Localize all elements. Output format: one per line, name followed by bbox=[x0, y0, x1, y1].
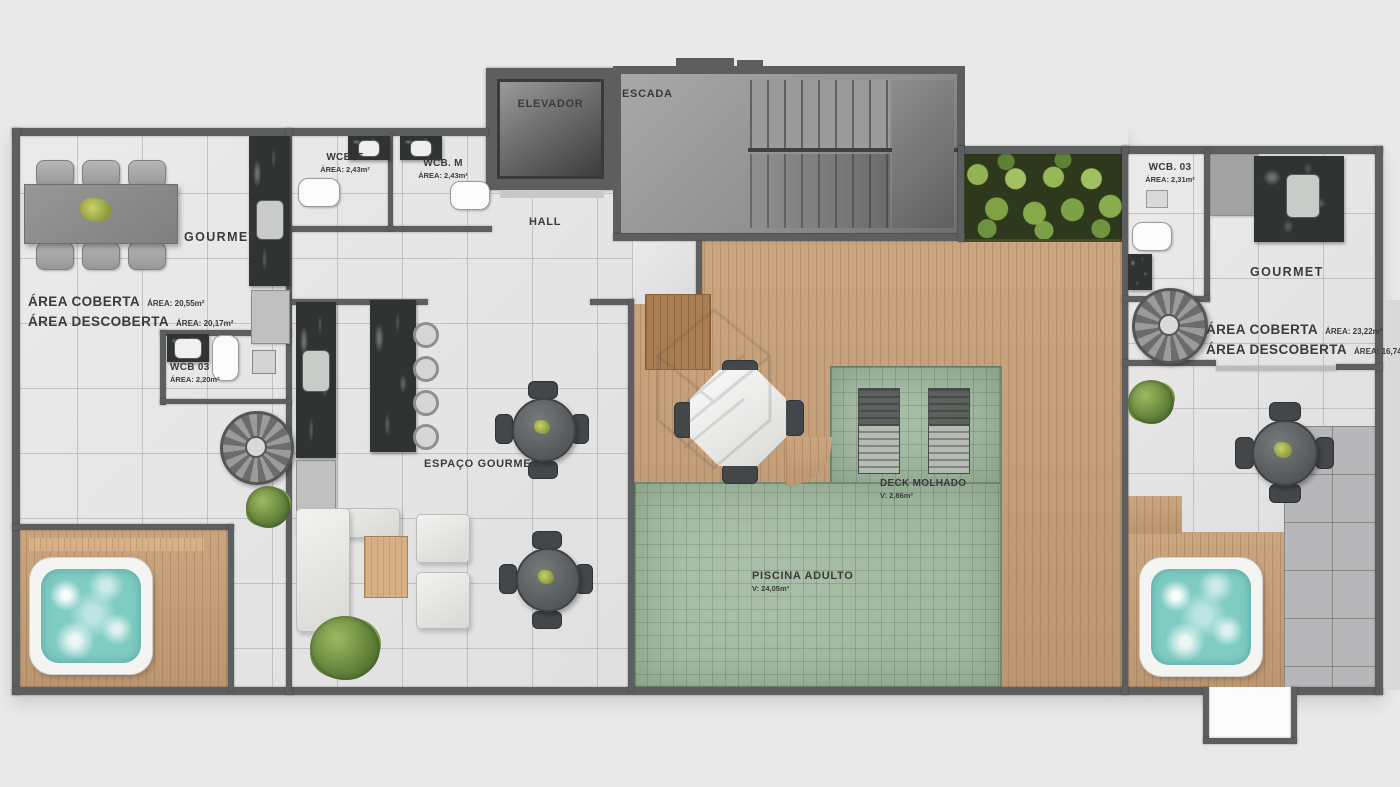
wall bbox=[160, 330, 166, 405]
wall bbox=[1291, 687, 1297, 743]
stair-flight-lower bbox=[750, 154, 890, 228]
wall bbox=[12, 128, 20, 695]
area-coberta-right: ÁREA COBERTA ÁREA: 23,22m² bbox=[1206, 322, 1382, 339]
room-area-wcb03-right-text: ÁREA: 2,31m² bbox=[1132, 175, 1208, 184]
room-label-hall-text: HALL bbox=[529, 216, 561, 230]
room-label-espaco-gourmet-text: ESPAÇO GOURMET bbox=[424, 458, 539, 472]
sink bbox=[1286, 174, 1320, 218]
area-coberta-left: ÁREA COBERTA ÁREA: 20,55m² bbox=[28, 294, 204, 311]
wall bbox=[1336, 364, 1383, 370]
bar-stool bbox=[413, 424, 439, 450]
room-area-wcb-f-text: ÁREA: 2,43m² bbox=[302, 165, 388, 174]
toilet bbox=[1132, 222, 1172, 251]
pool-lounger bbox=[858, 388, 900, 474]
room-area-wcb03-left-text: ÁREA: 2,20m² bbox=[170, 375, 220, 384]
wall bbox=[1291, 687, 1383, 695]
jacuzzi-left-water bbox=[41, 569, 141, 663]
wall bbox=[228, 524, 234, 691]
shower-fixture bbox=[252, 350, 276, 374]
armchair bbox=[416, 514, 470, 563]
wall bbox=[12, 687, 1209, 695]
sofa bbox=[296, 508, 350, 632]
room-label-piscina-adulto: PISCINA ADULTO V: 24,05m³ bbox=[752, 570, 853, 593]
chair bbox=[528, 381, 558, 399]
armchair bbox=[416, 572, 470, 629]
room-label-elevador-text: ELEVADOR bbox=[497, 98, 604, 112]
wall bbox=[1122, 146, 1383, 154]
wall bbox=[958, 146, 1130, 154]
coffee-table bbox=[364, 536, 408, 598]
room-label-deck-molhado-text: DECK MOLHADO bbox=[880, 478, 966, 491]
room-label-gourmet-left-text: GOURMET bbox=[184, 230, 258, 246]
room-label-piscina-adulto-text: PISCINA ADULTO bbox=[752, 570, 853, 584]
room-label-elevador: ELEVADOR bbox=[497, 98, 604, 112]
spiral-staircase-hub bbox=[245, 436, 267, 458]
wall bbox=[1375, 146, 1383, 695]
roof-cap bbox=[737, 60, 763, 69]
bar-stool bbox=[413, 356, 439, 382]
dining-chair bbox=[128, 242, 166, 270]
stair-landing bbox=[892, 80, 954, 228]
plant-centerpiece bbox=[1274, 442, 1292, 458]
potted-plant bbox=[310, 616, 380, 680]
pool-lounger bbox=[928, 388, 970, 474]
dining-chair bbox=[82, 242, 120, 270]
wall bbox=[1203, 738, 1297, 744]
area-descoberta-left-value: ÁREA: 20,17m² bbox=[176, 319, 233, 329]
room-label-escada-text: ESCADA bbox=[622, 88, 673, 102]
area-coberta-right-value: ÁREA: 23,22m² bbox=[1325, 327, 1382, 337]
wet-deck-area bbox=[830, 366, 1002, 484]
plant-centerpiece bbox=[538, 570, 554, 584]
bar-stool bbox=[413, 390, 439, 416]
wall bbox=[613, 234, 965, 241]
jacuzzi-right-water bbox=[1151, 569, 1251, 665]
chair bbox=[532, 611, 562, 629]
chair bbox=[495, 414, 513, 444]
cabinet bbox=[1210, 154, 1258, 216]
stair-flight-upper bbox=[750, 80, 890, 148]
room-label-escada: ESCADA bbox=[622, 88, 673, 102]
vanity bbox=[1128, 254, 1152, 290]
wall bbox=[12, 524, 234, 530]
room-label-gourmet-right-text: GOURMET bbox=[1250, 265, 1324, 281]
toilet bbox=[450, 181, 490, 210]
wall bbox=[1122, 146, 1128, 695]
sink bbox=[410, 140, 432, 157]
sink bbox=[256, 200, 284, 240]
room-volume-piscina-adulto-text: V: 24,05m³ bbox=[752, 584, 853, 593]
sink bbox=[302, 350, 330, 392]
potted-plant bbox=[246, 486, 290, 528]
area-descoberta-left: ÁREA DESCOBERTA ÁREA: 20,17m² bbox=[28, 314, 233, 331]
wall bbox=[160, 399, 292, 404]
watermark-logo-icon bbox=[628, 298, 800, 484]
chair bbox=[532, 531, 562, 549]
right-deck-step bbox=[1128, 496, 1182, 534]
room-label-deck-molhado: DECK MOLHADO V: 2,86m³ bbox=[880, 478, 966, 500]
room-volume-deck-molhado-text: V: 2,86m³ bbox=[880, 491, 966, 500]
elevator-threshold bbox=[500, 190, 604, 198]
shelf bbox=[1146, 190, 1168, 208]
room-label-wcb-m-text: WCB. M bbox=[400, 158, 486, 171]
area-descoberta-right-value: ÁREA: 16,74m² bbox=[1354, 347, 1400, 357]
room-label-wcb03-left: WCB 03 ÁREA: 2,20m² bbox=[170, 362, 220, 384]
chair bbox=[1269, 484, 1301, 503]
elevator-cab bbox=[497, 79, 604, 179]
cabinet bbox=[251, 290, 290, 344]
room-label-wcb-f: WCB. F ÁREA: 2,43m² bbox=[302, 152, 388, 174]
area-descoberta-left-label: ÁREA DESCOBERTA bbox=[28, 314, 169, 331]
chair bbox=[499, 564, 517, 594]
room-area-wcb-m-text: ÁREA: 2,43m² bbox=[400, 171, 486, 180]
plant-centerpiece bbox=[534, 420, 550, 434]
room-label-wcb03-right-text: WCB. 03 bbox=[1132, 162, 1208, 175]
sink bbox=[174, 338, 202, 359]
bg-cover bbox=[958, 124, 1128, 148]
room-label-wcb03-left-text: WCB 03 bbox=[170, 362, 220, 375]
chair bbox=[1269, 402, 1301, 421]
left-deck-bench bbox=[28, 538, 204, 551]
room-label-wcb-f-text: WCB. F bbox=[302, 152, 388, 165]
bar-stool bbox=[413, 322, 439, 348]
room-label-gourmet-left: GOURMET bbox=[184, 230, 258, 246]
floor-plan: ELEVADOR ESCADA HALL WCB. F ÁREA: 2,43m²… bbox=[0, 0, 1400, 787]
kitchen-island bbox=[370, 300, 416, 452]
room-label-espaco-gourmet: ESPAÇO GOURMET bbox=[424, 458, 539, 472]
potted-plant bbox=[1128, 380, 1174, 424]
roof-cap bbox=[676, 58, 734, 70]
room-label-wcb-m: WCB. M ÁREA: 2,43m² bbox=[400, 158, 486, 180]
room-label-wcb03-right: WCB. 03 ÁREA: 2,31m² bbox=[1132, 162, 1208, 184]
glass-door bbox=[1216, 366, 1336, 371]
room-label-gourmet-right: GOURMET bbox=[1250, 265, 1324, 281]
wall bbox=[12, 128, 488, 136]
area-descoberta-right-label: ÁREA DESCOBERTA bbox=[1206, 342, 1347, 359]
room-label-hall: HALL bbox=[529, 216, 561, 230]
hedge-planter bbox=[962, 150, 1126, 242]
wall bbox=[958, 146, 964, 242]
area-coberta-left-value: ÁREA: 20,55m² bbox=[147, 299, 204, 309]
area-coberta-left-label: ÁREA COBERTA bbox=[28, 294, 140, 311]
toilet bbox=[298, 178, 340, 207]
wall bbox=[1203, 687, 1209, 743]
notch-floor bbox=[1209, 687, 1291, 738]
plant-centerpiece bbox=[80, 198, 112, 222]
dining-chair bbox=[36, 242, 74, 270]
spiral-staircase-hub bbox=[1158, 314, 1180, 336]
area-coberta-right-label: ÁREA COBERTA bbox=[1206, 322, 1318, 339]
area-descoberta-right: ÁREA DESCOBERTA ÁREA: 16,74m² bbox=[1206, 342, 1400, 359]
